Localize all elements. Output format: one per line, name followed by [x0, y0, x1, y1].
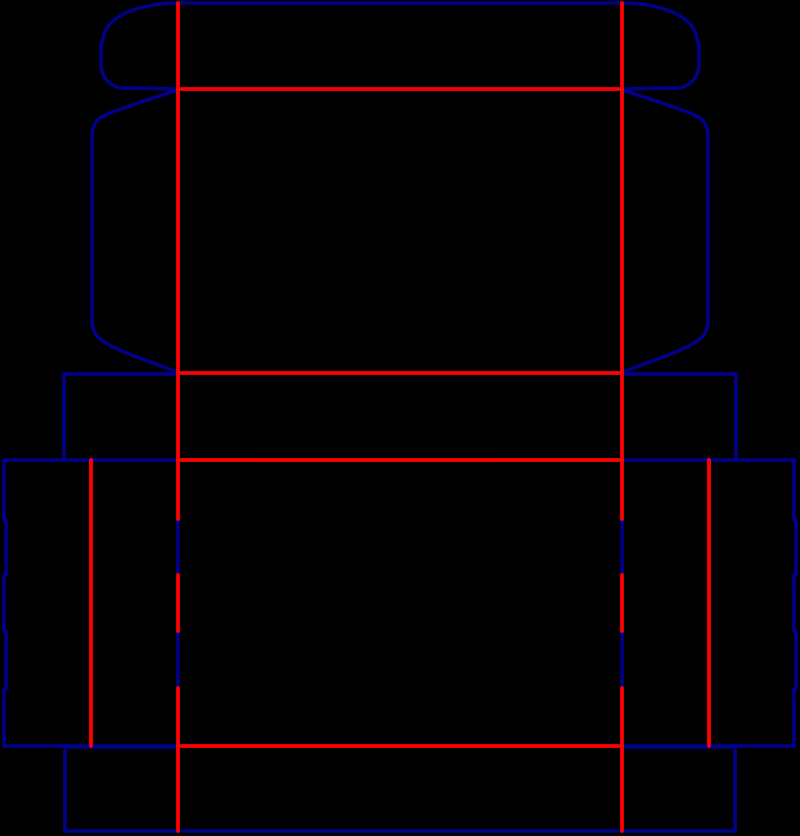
crease-lines-group — [91, 3, 709, 831]
dieline-canvas — [0, 0, 800, 836]
cut-line — [623, 90, 708, 372]
cut-line — [794, 460, 796, 746]
cut-lines-group — [4, 3, 796, 831]
cut-line — [4, 460, 6, 746]
cut-line — [65, 747, 735, 831]
cut-line — [64, 374, 178, 459]
cut-line — [101, 3, 177, 89]
cut-line — [623, 3, 699, 89]
cut-line — [622, 374, 736, 459]
cut-line — [92, 90, 177, 372]
dieline-svg — [0, 0, 800, 836]
